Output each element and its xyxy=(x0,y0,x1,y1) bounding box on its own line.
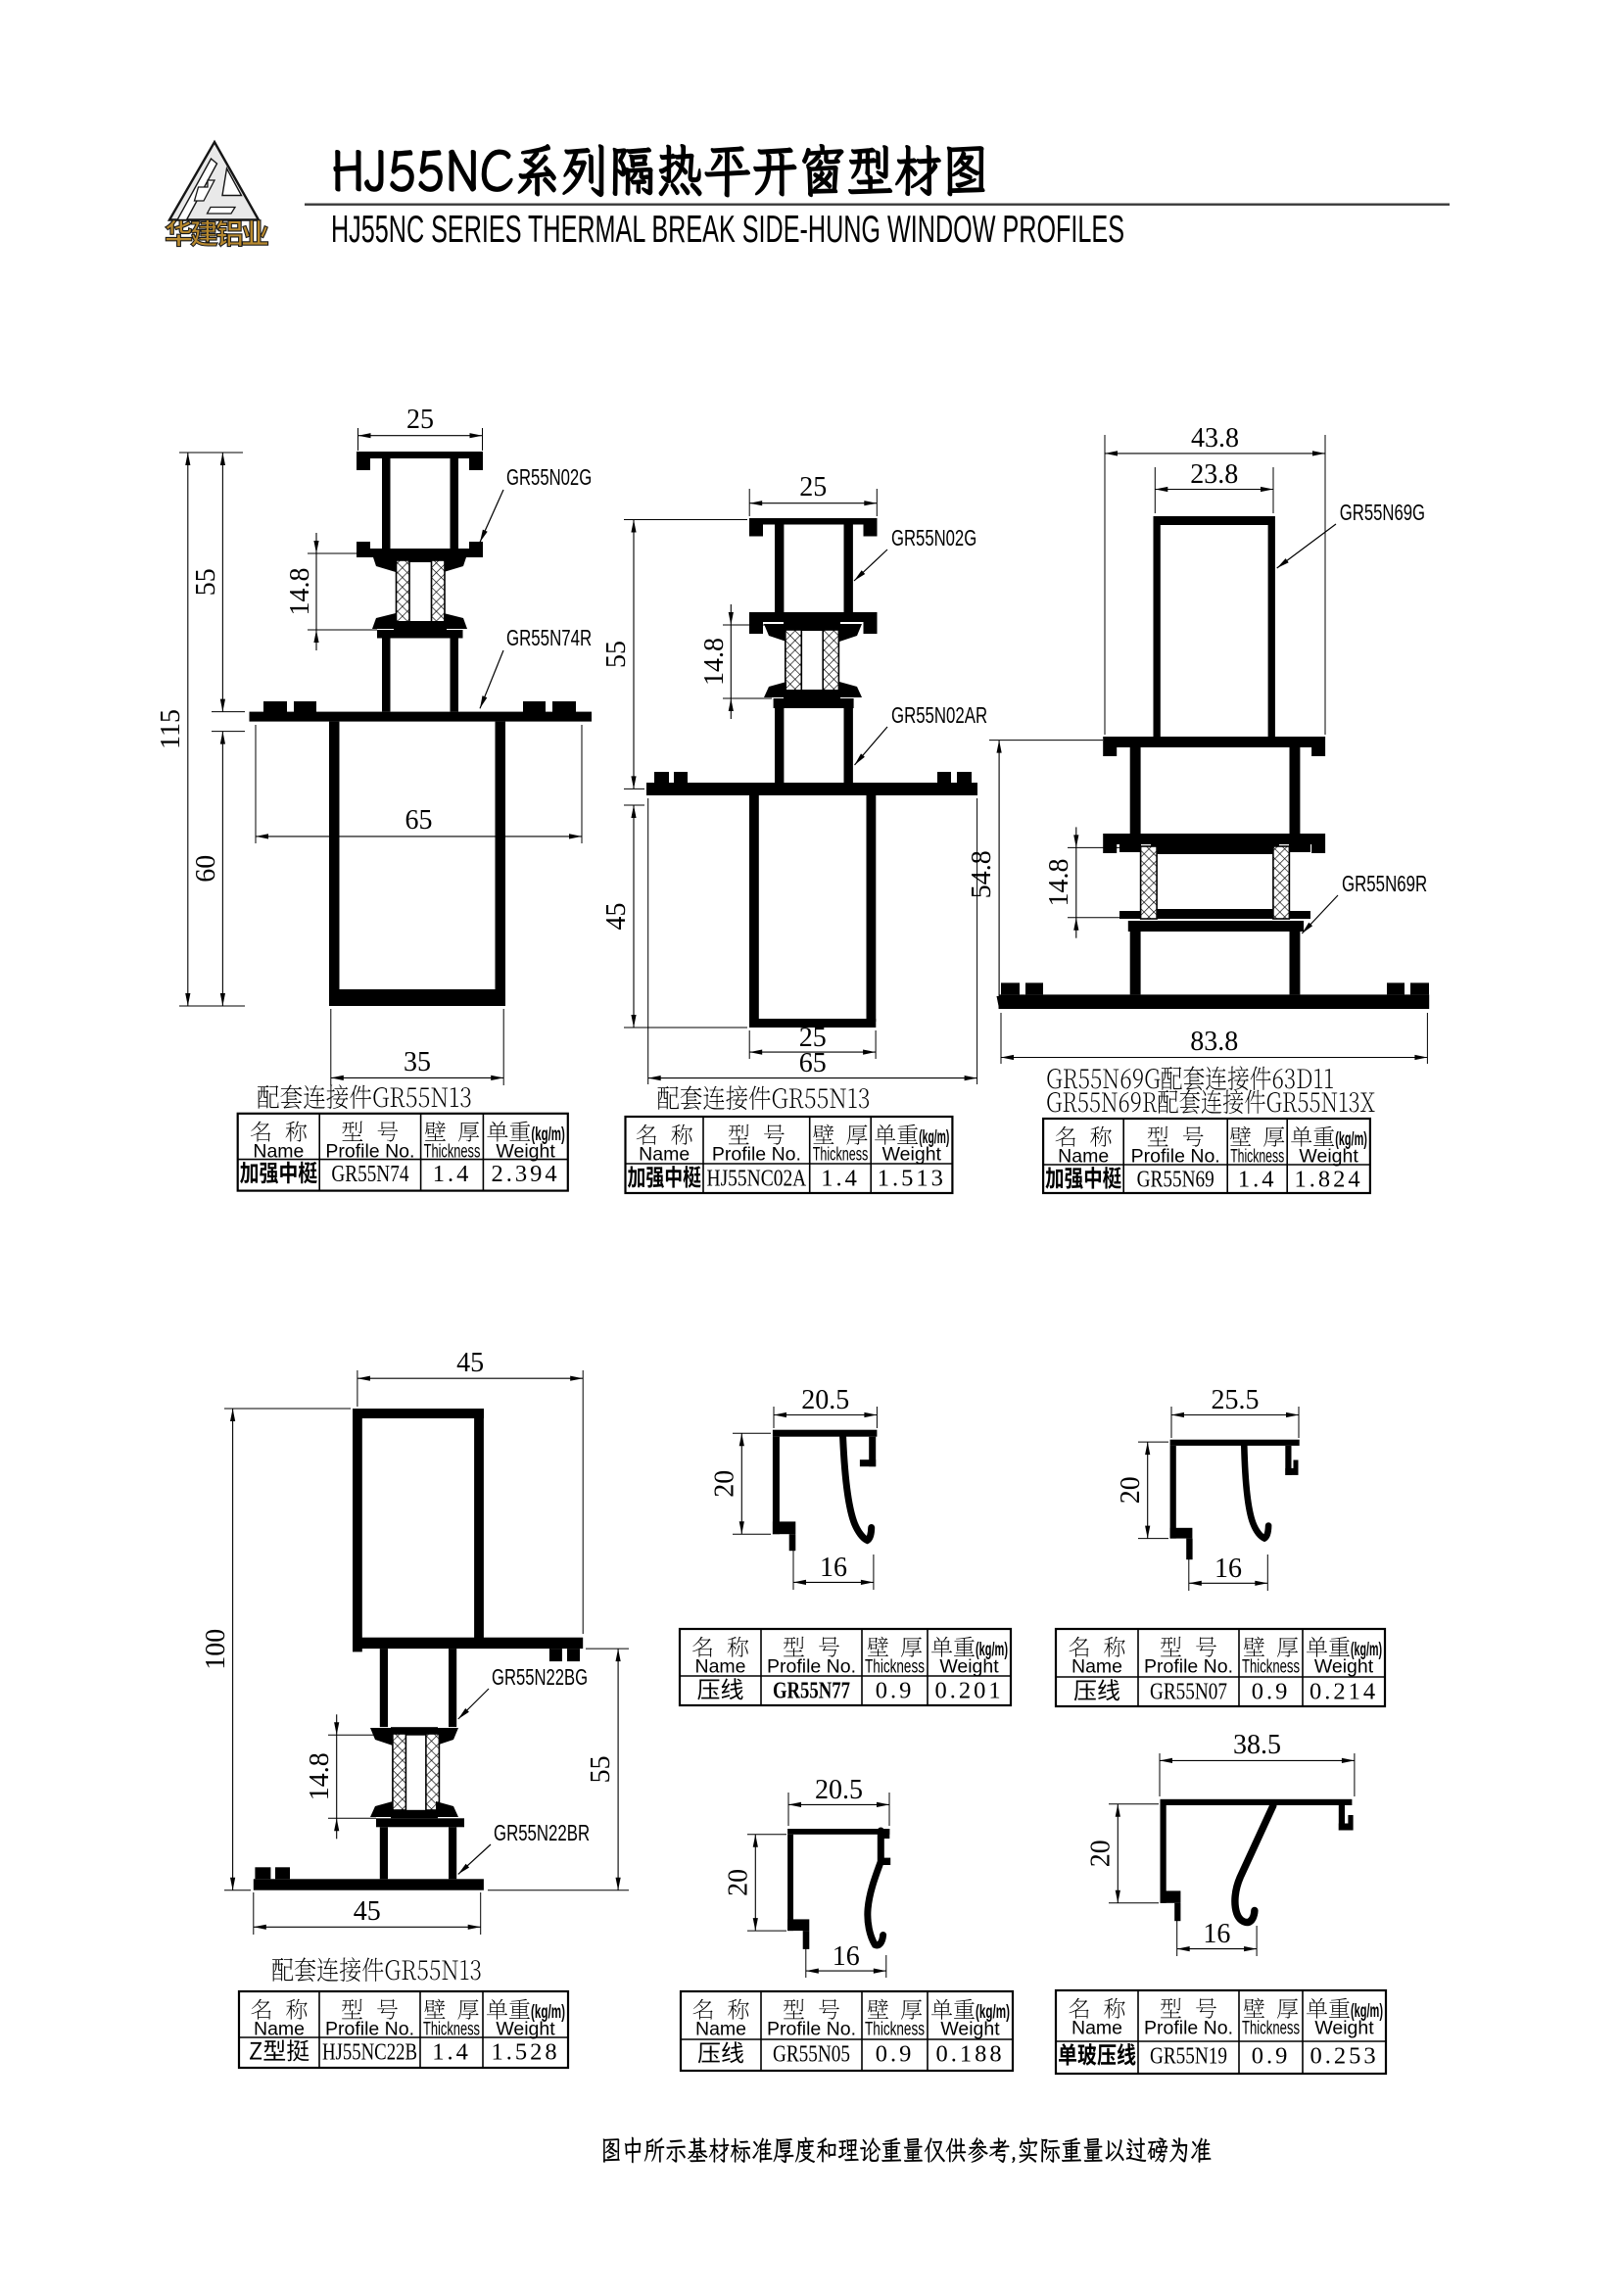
svg-text:Weight: Weight xyxy=(1299,1146,1358,1168)
svg-text:25.5: 25.5 xyxy=(1212,1385,1260,1415)
svg-text:Name: Name xyxy=(639,1144,690,1166)
svg-text:0.188: 0.188 xyxy=(935,2041,1004,2068)
svg-text:GR55N02G: GR55N02G xyxy=(506,464,592,490)
svg-text:14.8: 14.8 xyxy=(699,638,730,686)
svg-text:16: 16 xyxy=(833,1941,860,1972)
svg-text:115: 115 xyxy=(156,709,186,749)
svg-text:GR55N74: GR55N74 xyxy=(331,1161,408,1187)
svg-text:GR55N22BG: GR55N22BG xyxy=(492,1664,588,1690)
svg-text:20: 20 xyxy=(1116,1476,1146,1504)
svg-text:45: 45 xyxy=(456,1348,484,1378)
svg-text:Thickness: Thickness xyxy=(1242,1656,1300,1678)
svg-text:Weight: Weight xyxy=(939,1656,999,1678)
svg-text:Thickness: Thickness xyxy=(865,2019,925,2040)
svg-text:GR55N05: GR55N05 xyxy=(773,2041,850,2068)
svg-text:Profile No.: Profile No. xyxy=(712,1144,801,1166)
svg-text:Name: Name xyxy=(694,1656,745,1678)
svg-text:20: 20 xyxy=(724,1869,754,1896)
svg-text:20: 20 xyxy=(1086,1840,1117,1867)
svg-text:GR55N69R: GR55N69R xyxy=(1342,871,1427,896)
svg-text:Weight: Weight xyxy=(940,2019,1000,2040)
svg-text:38.5: 38.5 xyxy=(1233,1730,1281,1760)
svg-text:65: 65 xyxy=(799,1048,827,1078)
svg-text:60: 60 xyxy=(191,855,221,883)
svg-text:1.528: 1.528 xyxy=(491,2039,559,2066)
svg-text:16: 16 xyxy=(1203,1919,1230,1949)
svg-text:GR55N19: GR55N19 xyxy=(1150,2043,1227,2070)
svg-text:Profile No.: Profile No. xyxy=(767,2019,856,2040)
svg-text:Weight: Weight xyxy=(496,2019,555,2040)
svg-text:43.8: 43.8 xyxy=(1191,423,1239,454)
svg-text:GR55N69G: GR55N69G xyxy=(1340,500,1425,525)
svg-text:55: 55 xyxy=(191,568,221,596)
svg-text:Profile No.: Profile No. xyxy=(1144,2018,1233,2039)
svg-text:0.9: 0.9 xyxy=(876,2041,915,2068)
svg-text:Profile No.: Profile No. xyxy=(1144,1656,1233,1678)
svg-text:83.8: 83.8 xyxy=(1190,1027,1238,1057)
svg-text:0.253: 0.253 xyxy=(1309,2043,1378,2070)
svg-text:20: 20 xyxy=(710,1470,740,1498)
svg-text:45: 45 xyxy=(601,903,632,931)
svg-text:14.8: 14.8 xyxy=(285,568,315,616)
svg-text:Name: Name xyxy=(695,2019,746,2040)
svg-text:Name: Name xyxy=(1071,2018,1122,2039)
svg-text:GR55N02AR: GR55N02AR xyxy=(891,702,987,728)
svg-text:100: 100 xyxy=(201,1629,231,1670)
svg-text:55: 55 xyxy=(586,1755,616,1783)
svg-text:1.824: 1.824 xyxy=(1295,1167,1363,1193)
svg-text:GR55N74R: GR55N74R xyxy=(506,625,592,650)
svg-text:35: 35 xyxy=(404,1047,431,1077)
svg-text:0.9: 0.9 xyxy=(1252,1679,1291,1705)
svg-text:55: 55 xyxy=(601,641,632,668)
svg-text:HJ55NC SERIES THERMAL BREAK SI: HJ55NC SERIES THERMAL BREAK SIDE-HUNG WI… xyxy=(331,209,1124,251)
svg-text:Weight: Weight xyxy=(882,1144,942,1166)
svg-text:0.9: 0.9 xyxy=(876,1678,915,1704)
svg-text:Profile No.: Profile No. xyxy=(325,1140,414,1162)
svg-text:1.4: 1.4 xyxy=(1238,1167,1277,1193)
svg-text:Profile No.: Profile No. xyxy=(767,1656,856,1678)
svg-text:Weight: Weight xyxy=(496,1140,555,1162)
svg-text:Profile No.: Profile No. xyxy=(1131,1146,1220,1168)
svg-text:GR55N77: GR55N77 xyxy=(773,1678,850,1704)
svg-text:0.214: 0.214 xyxy=(1309,1679,1378,1705)
svg-text:Thickness: Thickness xyxy=(813,1144,869,1166)
svg-text:14.8: 14.8 xyxy=(1044,859,1074,907)
svg-text:Weight: Weight xyxy=(1314,2018,1374,2039)
svg-text:Thickness: Thickness xyxy=(1230,1146,1284,1168)
svg-text:Name: Name xyxy=(254,2019,305,2040)
svg-text:65: 65 xyxy=(405,805,433,836)
svg-text:0.9: 0.9 xyxy=(1252,2043,1291,2070)
svg-text:23.8: 23.8 xyxy=(1190,459,1238,490)
svg-text:20.5: 20.5 xyxy=(801,1385,849,1415)
svg-text:Weight: Weight xyxy=(1314,1656,1374,1678)
svg-text:2.394: 2.394 xyxy=(492,1161,560,1187)
svg-text:Thickness: Thickness xyxy=(423,2019,480,2040)
svg-text:1.513: 1.513 xyxy=(878,1166,946,1192)
svg-text:Name: Name xyxy=(1058,1146,1109,1168)
svg-text:HJ55NC02A: HJ55NC02A xyxy=(707,1166,807,1192)
svg-text:GR55N02G: GR55N02G xyxy=(891,525,976,550)
svg-text:45: 45 xyxy=(354,1896,381,1927)
svg-text:Profile No.: Profile No. xyxy=(325,2019,414,2040)
svg-text:14.8: 14.8 xyxy=(305,1752,335,1800)
svg-text:54.8: 54.8 xyxy=(967,850,997,898)
svg-text:GR55N69: GR55N69 xyxy=(1137,1167,1214,1193)
svg-text:Thickness: Thickness xyxy=(865,1656,925,1678)
svg-text:HJ55NC22B: HJ55NC22B xyxy=(322,2039,417,2066)
svg-text:20.5: 20.5 xyxy=(815,1775,863,1805)
svg-text:1.4: 1.4 xyxy=(821,1166,860,1192)
svg-text:16: 16 xyxy=(1214,1554,1242,1584)
svg-text:25: 25 xyxy=(799,472,827,502)
svg-text:Name: Name xyxy=(1071,1656,1122,1678)
svg-text:1.4: 1.4 xyxy=(432,2039,471,2066)
svg-text:1.4: 1.4 xyxy=(433,1161,472,1187)
svg-text:GR55N22BR: GR55N22BR xyxy=(494,1820,590,1845)
svg-text:0.201: 0.201 xyxy=(934,1678,1003,1704)
svg-text:Thickness: Thickness xyxy=(1242,2018,1300,2039)
svg-text:GR55N07: GR55N07 xyxy=(1150,1679,1227,1705)
svg-text:16: 16 xyxy=(820,1553,847,1583)
svg-text:25: 25 xyxy=(406,405,434,435)
svg-text:Name: Name xyxy=(253,1140,304,1162)
svg-text:Thickness: Thickness xyxy=(424,1140,481,1162)
